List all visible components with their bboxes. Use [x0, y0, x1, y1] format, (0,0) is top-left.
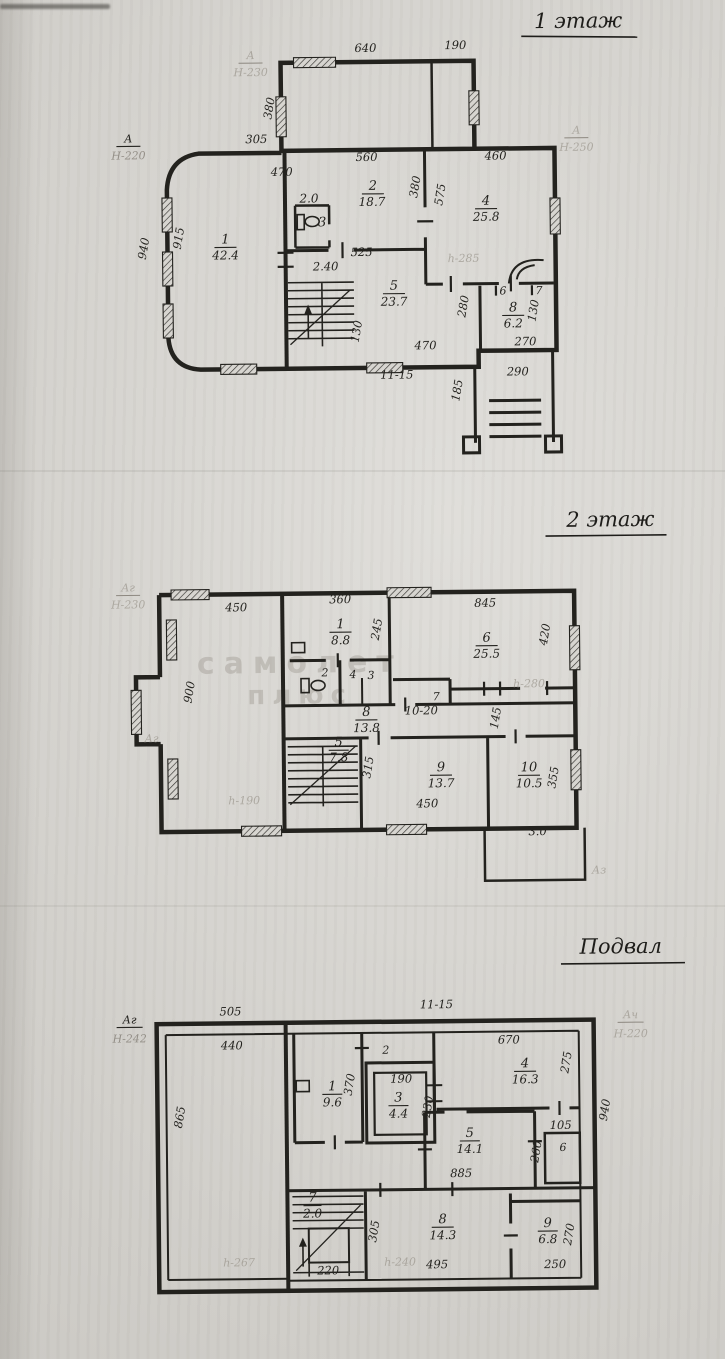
- f1-marker-left-h: Н-220: [110, 149, 145, 162]
- f2-dim: 245: [368, 617, 386, 642]
- floor1-stairs: [288, 282, 355, 347]
- f1-dim: 380: [260, 96, 277, 120]
- f3-dim: 270: [560, 1222, 578, 1247]
- f3-dim: 305: [365, 1219, 382, 1243]
- f2-room10-area: 10.5: [516, 776, 543, 790]
- f2-dim: 360: [329, 592, 351, 606]
- f3-marker-tr: Ач: [622, 1008, 638, 1021]
- f1-dim: 525: [350, 245, 372, 259]
- f3-marker-tl-h: Н-242: [112, 1032, 147, 1045]
- f2-room6-area: 25.5: [472, 647, 500, 661]
- f2-dim: 145: [487, 706, 504, 730]
- f3-room9-number: 9: [543, 1216, 551, 1231]
- f1-dim: 380: [406, 175, 423, 199]
- f3-room8-area: 14.3: [429, 1228, 456, 1242]
- f3-dim: 11-15: [420, 997, 453, 1011]
- f2-room5-number: 5: [334, 735, 342, 750]
- f3-room8-number: 8: [438, 1212, 446, 1227]
- f2-room8-number: 8: [362, 705, 370, 720]
- f1-room7-number: 7: [535, 284, 542, 297]
- f1-dim: 470: [270, 165, 293, 179]
- f1-room2-number: 2: [368, 179, 377, 194]
- basement-title: Подвал: [578, 934, 662, 959]
- f3-room3-area: 4.4: [388, 1107, 408, 1121]
- f1-room8-number: 8: [509, 300, 517, 315]
- f3-dim: 940: [596, 1098, 613, 1122]
- floor2-windows: [130, 586, 582, 838]
- f2-room1-area: 8.8: [331, 633, 351, 647]
- f3-dim: 250: [543, 1257, 566, 1271]
- f2-room1-number: 1: [336, 617, 344, 632]
- f3-room4-number: 4: [520, 1056, 529, 1071]
- basement-plan: Подвал Аг Н-242 Ач Н-220 h-267 h-240 505…: [111, 934, 689, 1293]
- f2-dim: 420: [536, 622, 554, 647]
- f3-room7-area: 2.0: [302, 1206, 323, 1220]
- f2-room9-number: 9: [437, 760, 445, 775]
- f3-room6-number: 6: [559, 1141, 566, 1154]
- f1-dim: 280: [454, 294, 472, 319]
- f3-room4-area: 16.3: [512, 1072, 539, 1086]
- floor1-title-underline: [521, 35, 637, 38]
- f3-dim: 105: [550, 1118, 572, 1132]
- f1-dim: 130: [525, 299, 542, 323]
- f3-dim: 275: [557, 1050, 575, 1075]
- f2-marker-left: Аг: [144, 732, 159, 745]
- f2-dim: 450: [224, 600, 247, 614]
- f3-room1-number: 1: [328, 1079, 336, 1094]
- f3-room1-area: 9.6: [323, 1095, 343, 1109]
- f1-room3-number: 3: [318, 215, 326, 230]
- f1-room4-area: 25.8: [472, 210, 500, 224]
- f2-room7-number: 7: [433, 690, 440, 703]
- f3-marker-tl: Аг: [122, 1013, 137, 1026]
- f2-marker-br: Аз: [591, 863, 606, 876]
- f3-dim: 370: [341, 1072, 358, 1096]
- f3-room9-area: 6.8: [538, 1232, 558, 1246]
- f1-dim: 290: [506, 364, 529, 378]
- f2-marker-tl-h: Н-230: [110, 598, 145, 611]
- f3-dim: 440: [220, 1038, 243, 1052]
- floor1-toilet-icon: [297, 214, 319, 229]
- f1-room8-area: 6.2: [504, 316, 523, 330]
- f2-room3-number: 3: [367, 669, 374, 682]
- f1-dim: 2.40: [312, 259, 339, 273]
- f2-dim: 845: [474, 596, 496, 610]
- f1-dim: 305: [245, 132, 267, 146]
- f1-dim: 560: [355, 150, 377, 164]
- f2-dim: 355: [544, 765, 561, 789]
- f1-marker-top-h: Н-230: [232, 66, 267, 79]
- f1-room5-area: 23.7: [380, 295, 408, 309]
- f3-dim: 495: [425, 1257, 448, 1271]
- floor1-title: 1 этаж: [534, 8, 622, 33]
- f3-dim: 220: [316, 1263, 339, 1277]
- f3-note-h267: h-267: [223, 1256, 255, 1269]
- floorplan-scan: 1 этаж А Н-2: [0, 0, 725, 1359]
- f2-dim: 3.0: [528, 824, 546, 838]
- f2-dim: 315: [359, 755, 376, 779]
- f3-dim: 505: [219, 1004, 241, 1018]
- basement-title-underline: [561, 963, 685, 964]
- f3-dim: 260: [527, 1140, 545, 1165]
- f2-room5-area: 7.8: [329, 750, 349, 764]
- f1-dim: 460: [483, 148, 506, 162]
- f1-room1-area: 42.4: [211, 248, 239, 262]
- f1-dim: 190: [444, 38, 466, 52]
- f3-room5-area: 14.1: [456, 1142, 483, 1156]
- f1-dim: 11-15: [380, 367, 413, 381]
- floor1-plan: 1 этаж А Н-2: [109, 8, 642, 457]
- f2-room6-number: 6: [482, 631, 490, 646]
- f1-room6-number: 6: [499, 284, 506, 297]
- floor2-plan: 2 этаж самолет плюс Аг Н-230 Аг Аз h-280: [109, 507, 670, 885]
- f1-dim: 470: [413, 338, 436, 352]
- f2-room9-area: 13.7: [428, 776, 455, 790]
- f1-marker-right-h: Н-250: [558, 141, 593, 154]
- f3-room2-number: 2: [381, 1044, 389, 1057]
- f2-dim: 10-20: [405, 703, 438, 717]
- f1-note-h285: h-285: [448, 252, 480, 265]
- f3-room5-number: 5: [466, 1126, 474, 1141]
- f2-room10-number: 10: [521, 760, 538, 775]
- f3-dim: 885: [450, 1166, 472, 1180]
- f1-dim: 130: [348, 319, 365, 343]
- f2-dim: 450: [415, 796, 438, 810]
- f3-room7-number: 7: [308, 1190, 317, 1205]
- f3-room3-number: 3: [394, 1091, 402, 1106]
- f1-dim: 270: [513, 334, 536, 348]
- f1-marker-left: А: [123, 132, 132, 145]
- f2-note-h190: h-190: [228, 794, 260, 807]
- f1-room3-area: 2.0: [298, 191, 319, 205]
- f2-marker-tl: Аг: [120, 581, 135, 594]
- f3-dim: 865: [171, 1105, 188, 1129]
- f2-room8-area: 13.8: [353, 721, 380, 735]
- f1-dim: 915: [170, 226, 187, 250]
- f3-dim: 190: [390, 1071, 412, 1085]
- f1-room5-number: 5: [390, 279, 398, 294]
- f1-dim: 575: [431, 182, 448, 206]
- f1-room1-number: 1: [221, 232, 229, 247]
- f3-marker-tr-h: Н-220: [612, 1027, 647, 1040]
- f2-dim: 900: [180, 680, 197, 704]
- f1-marker-right: А: [571, 124, 580, 137]
- f1-room4-number: 4: [481, 194, 490, 209]
- f1-marker-top: А: [245, 49, 254, 62]
- floor2-title-underline: [546, 535, 667, 536]
- floor2-title: 2 этаж: [565, 507, 654, 532]
- f3-dim: 670: [498, 1032, 520, 1046]
- f2-room4-number: 4: [348, 668, 356, 681]
- f1-dim: 940: [135, 237, 152, 261]
- basement-fixture-icons: [296, 1081, 309, 1092]
- f1-room2-area: 18.7: [359, 195, 386, 209]
- f1-dim: 640: [354, 41, 376, 55]
- f3-note-h240: h-240: [384, 1255, 416, 1268]
- f2-note-h280: h-280: [513, 677, 545, 690]
- f1-dim: 185: [448, 378, 465, 402]
- f2-room2-number: 2: [320, 666, 328, 679]
